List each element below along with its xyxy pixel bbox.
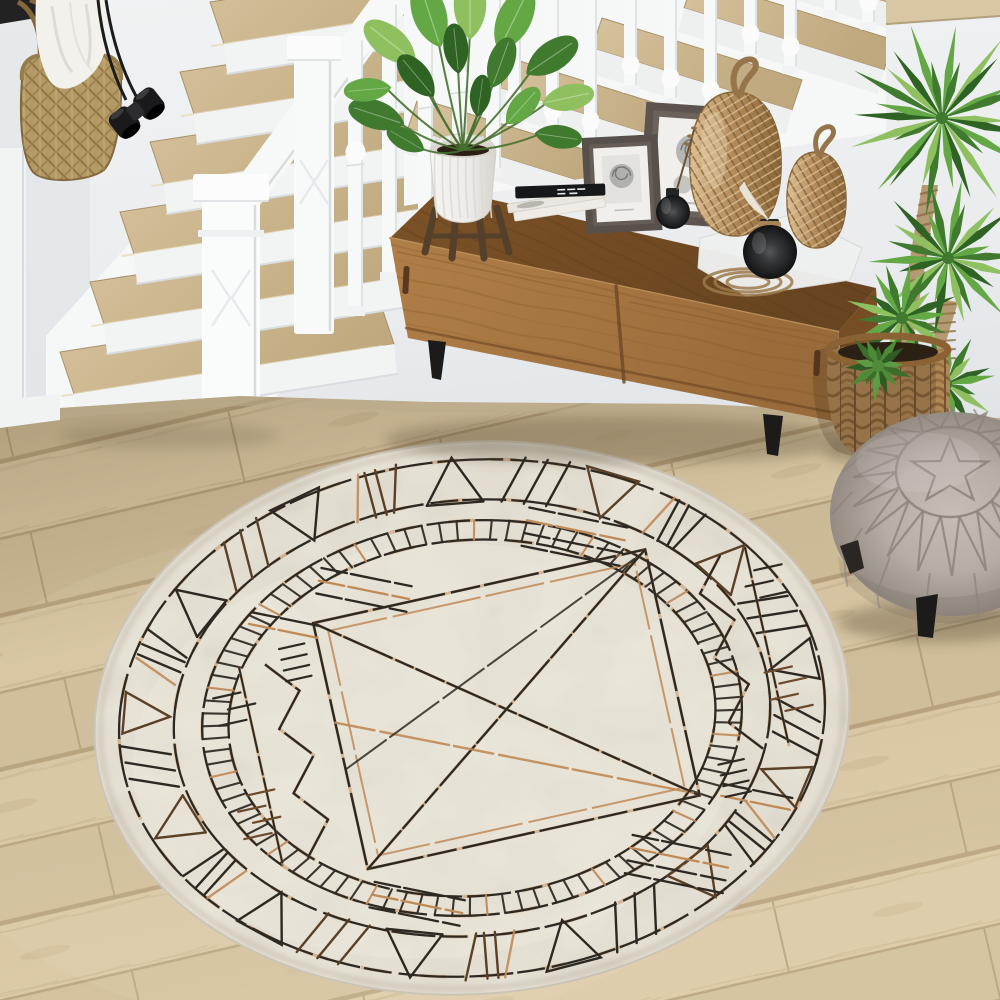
scene-canvas (0, 0, 1000, 1000)
hallway-scene (0, 0, 1000, 1000)
